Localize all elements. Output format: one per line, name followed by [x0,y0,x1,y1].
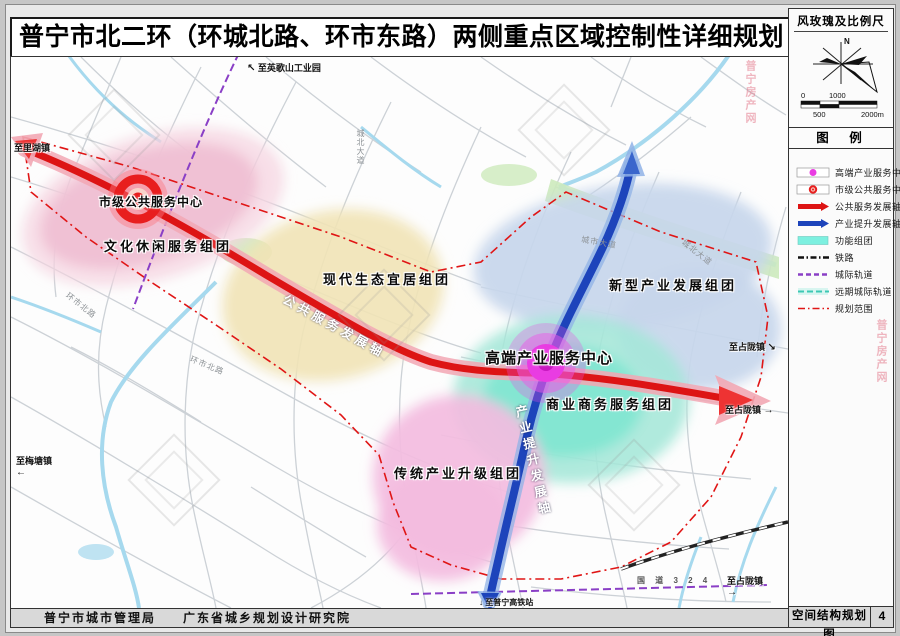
svg-text:2000m: 2000m [861,110,884,119]
footer-designer: 广东省城乡规划设计研究院 [183,609,351,627]
label-zone-tradind: 传统产业升级组团 [394,463,522,482]
windrose-title: 风玫瑰及比例尺 [794,9,888,32]
edge-label-guodao: 国 道 3 2 4 [637,575,711,586]
cluster-swatch-icon [796,235,830,246]
watermark-text: 普宁房产网 [873,319,889,384]
windrose-box: 风玫瑰及比例尺 N 0 1000 [789,9,893,128]
arrow-left-icon: ← [16,467,26,478]
legend-item: 市级公共服务中心 [796,183,893,196]
side-panel: 风玫瑰及比例尺 N 0 1000 [788,8,894,628]
label-zone-newind: 新型产业发展组团 [609,275,737,294]
svg-text:500: 500 [813,110,826,119]
legend-item: 城际轨道 [796,268,893,281]
label-highend-center: 高端产业服务中心 [485,347,613,368]
footer-bar: 普宁市城市管理局 广东省城乡规划设计研究院 [10,608,788,628]
legend-list: 高端产业服务中心 市级公共服务中心 公共服务发展轴 [789,149,893,606]
label-zone-commerce: 商业商务服务组团 [546,394,674,413]
city-center-swatch-icon [796,184,830,195]
footer-agency: 普宁市城市管理局 [44,609,156,627]
edge-label-meitang: 至梅塘镇 ← [16,454,52,478]
edge-label-lihu: 至里湖镇 [14,141,50,154]
road-label-chengbei-1: 城北大道 [355,129,366,165]
windrose-icon: N 0 1000 500 2000m [789,32,893,124]
edge-label-zhanlong-3: 至占陇镇 → [727,574,763,598]
watermark-text: 普宁房产网 [742,60,758,125]
railway-swatch-icon [796,252,830,263]
sheet-number: 4 [871,607,893,627]
pond [78,544,114,560]
edge-label-zhanlong-2: 至占陇镇 → [725,403,774,416]
blue-axis-swatch-icon [796,218,830,229]
label-zone-eco: 现代生态宜居组团 [323,269,451,288]
edge-label-zhanlong-1: 至占陇镇 ↘ [729,340,776,353]
arrow-right-icon: → [727,587,737,598]
edge-label-gaotie: ↓ 至普宁高铁站 [479,597,533,608]
arrow-upleft-icon: ↖ [247,63,255,74]
svg-text:0: 0 [801,91,805,100]
boundary-swatch-icon [796,303,830,314]
edge-label-yingge: ↖ 至英歌山工业园 [247,61,321,74]
sheet-title: 空间结构规划图 [789,607,871,627]
arrow-right-icon: → [764,405,774,416]
arrow-se-icon: ↘ [768,342,776,353]
svg-text:1000: 1000 [829,91,846,100]
north-label: N [844,37,850,46]
plan-sheet-page: 普宁市北二环（环城北路、环市东路）两侧重点区域控制性详细规划 [0,0,900,636]
railway [621,522,788,569]
legend-item: 高端产业服务中心 [796,166,893,179]
legend-item: 规划范围 [796,302,893,315]
map-canvas: 普宁房产网 市级公共服务中心 文化休闲服务组团 现代生态宜居组团 新型产业发展组… [10,56,789,609]
legend-item: 公共服务发展轴 [796,200,893,213]
page-title: 普宁市北二环（环城北路、环市东路）两侧重点区域控制性详细规划 [10,17,791,59]
scale-bar: 0 1000 500 2000m [801,91,884,119]
highend-center-swatch-icon [796,167,830,178]
future-rail-swatch-icon [796,286,830,297]
red-axis-swatch-icon [796,201,830,212]
legend-item: 产业提升发展轴 [796,217,893,230]
label-city-center: 市级公共服务中心 [99,193,203,210]
panel-footer: 空间结构规划图 4 [789,606,893,627]
intercity-rail-swatch-icon [796,269,830,280]
legend-item: 功能组团 [796,234,893,247]
label-zone-culture: 文化休闲服务组团 [104,236,232,255]
arrow-down-icon: ↓ [479,598,483,607]
legend-title: 图 例 [789,128,893,149]
legend-item: 铁路 [796,251,893,264]
legend-item: 远期城际轨道 [796,285,893,298]
